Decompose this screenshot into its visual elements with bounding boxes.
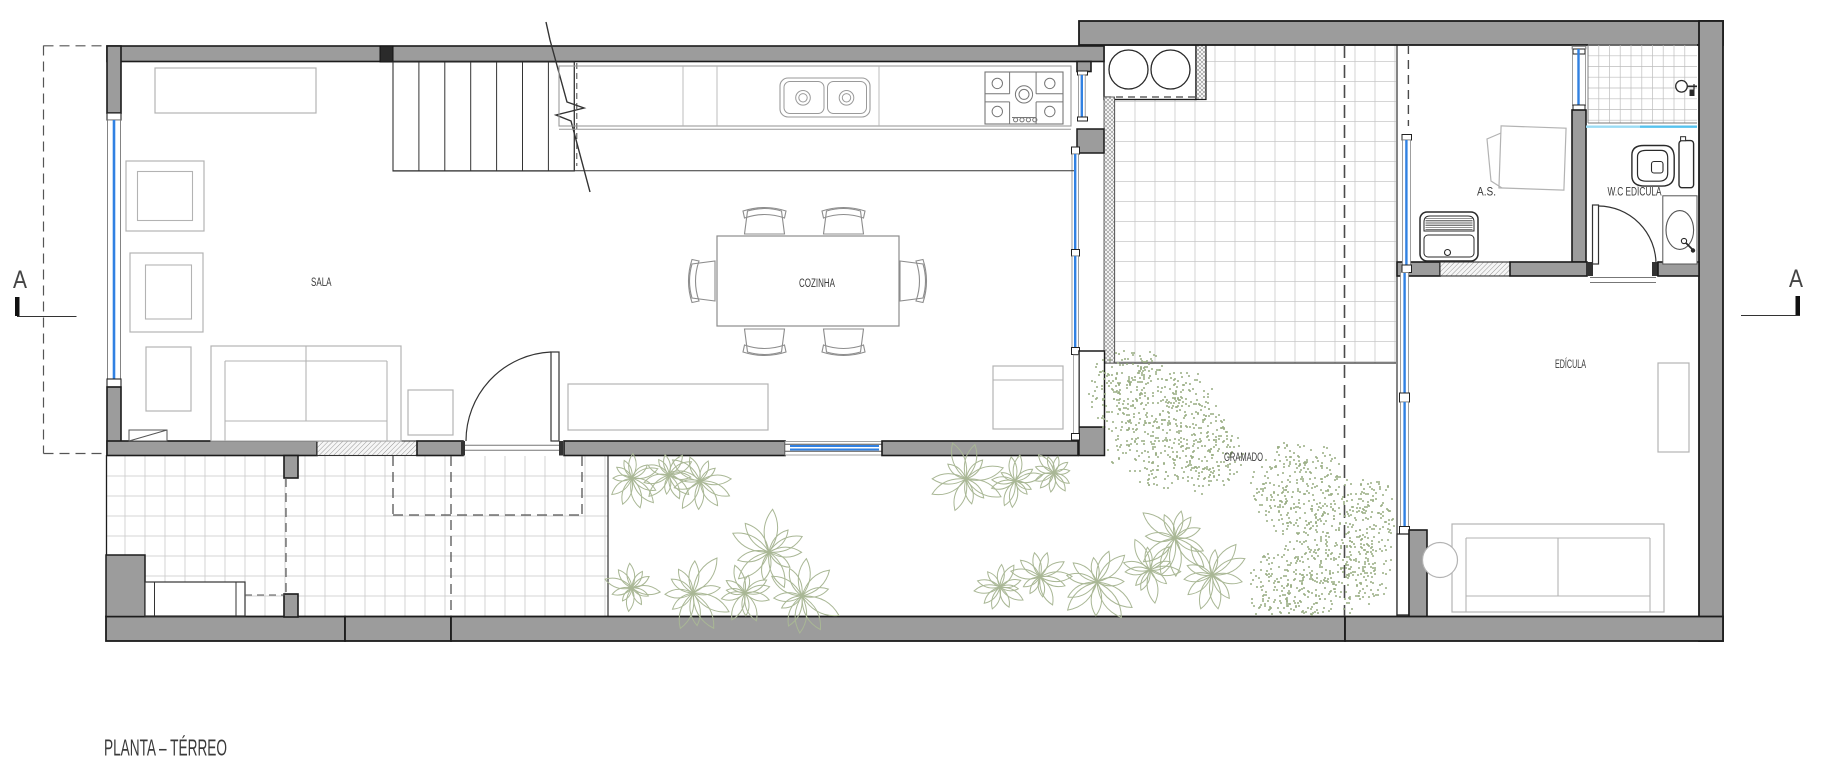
svg-text:GRAMADO: GRAMADO [1224,452,1263,464]
svg-text:W.C EDÍCULA: W.C EDÍCULA [1608,186,1662,199]
svg-text:PLANTA – TÉRREO: PLANTA – TÉRREO [104,735,227,761]
svg-text:EDÍCULA: EDÍCULA [1555,358,1586,371]
svg-text:A: A [1789,265,1803,293]
svg-text:COZINHA: COZINHA [799,278,835,290]
svg-text:A: A [13,266,27,294]
svg-text:A.S.: A.S. [1477,187,1496,199]
svg-text:SALA: SALA [311,277,332,289]
